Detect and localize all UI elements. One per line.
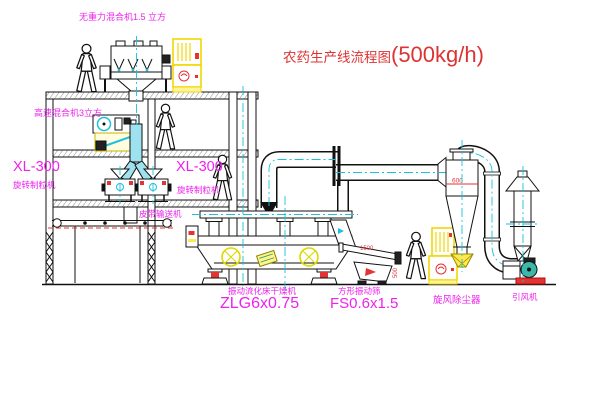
label-gravity-mixer: 无重力混合机1.5 立方 — [79, 13, 166, 22]
label-granulator-right-name: 旋转制粒机 — [177, 186, 220, 195]
label-cyclone: 旋风除尘器 — [433, 296, 481, 306]
pesticide-line-flow-diagram: 1500 500 600 — [0, 0, 600, 403]
label-granulator-left-model: XL-300 — [13, 160, 60, 175]
belt-conveyor — [48, 219, 176, 283]
vibrating-screen: 1500 500 — [330, 220, 401, 284]
diagram-title-capacity: (500kg/h) — [391, 44, 484, 66]
label-belt-conveyor: 皮带输送机 — [139, 210, 182, 219]
fluid-bed-dryer — [186, 211, 352, 284]
exhaust-stack — [506, 171, 539, 261]
dim-screen-length: 1500 — [360, 246, 374, 252]
label-dryer-model: ZLG6x0.75 — [220, 296, 299, 312]
control-cabinet-top — [173, 39, 201, 92]
induced-draft-fan — [503, 258, 545, 284]
dryer-ducting — [260, 146, 446, 217]
person-figure-1 — [77, 44, 96, 91]
label-granulator-right-model: XL-300 — [176, 160, 223, 175]
label-fan: 引风机 — [512, 293, 538, 302]
dim-screen-width: 500 — [393, 267, 399, 278]
label-high-speed-mixer: 高速混合机3立方 — [34, 109, 102, 118]
diagram-title: 农药生产线流程图 — [283, 51, 391, 65]
dim-cyclone-inlet: 600 — [452, 178, 463, 185]
label-screen-model: FS0.6x1.5 — [330, 296, 398, 311]
person-figure-4 — [406, 232, 425, 278]
label-granulator-left-name: 旋转制粒机 — [13, 181, 56, 190]
person-figure-2 — [156, 104, 174, 149]
